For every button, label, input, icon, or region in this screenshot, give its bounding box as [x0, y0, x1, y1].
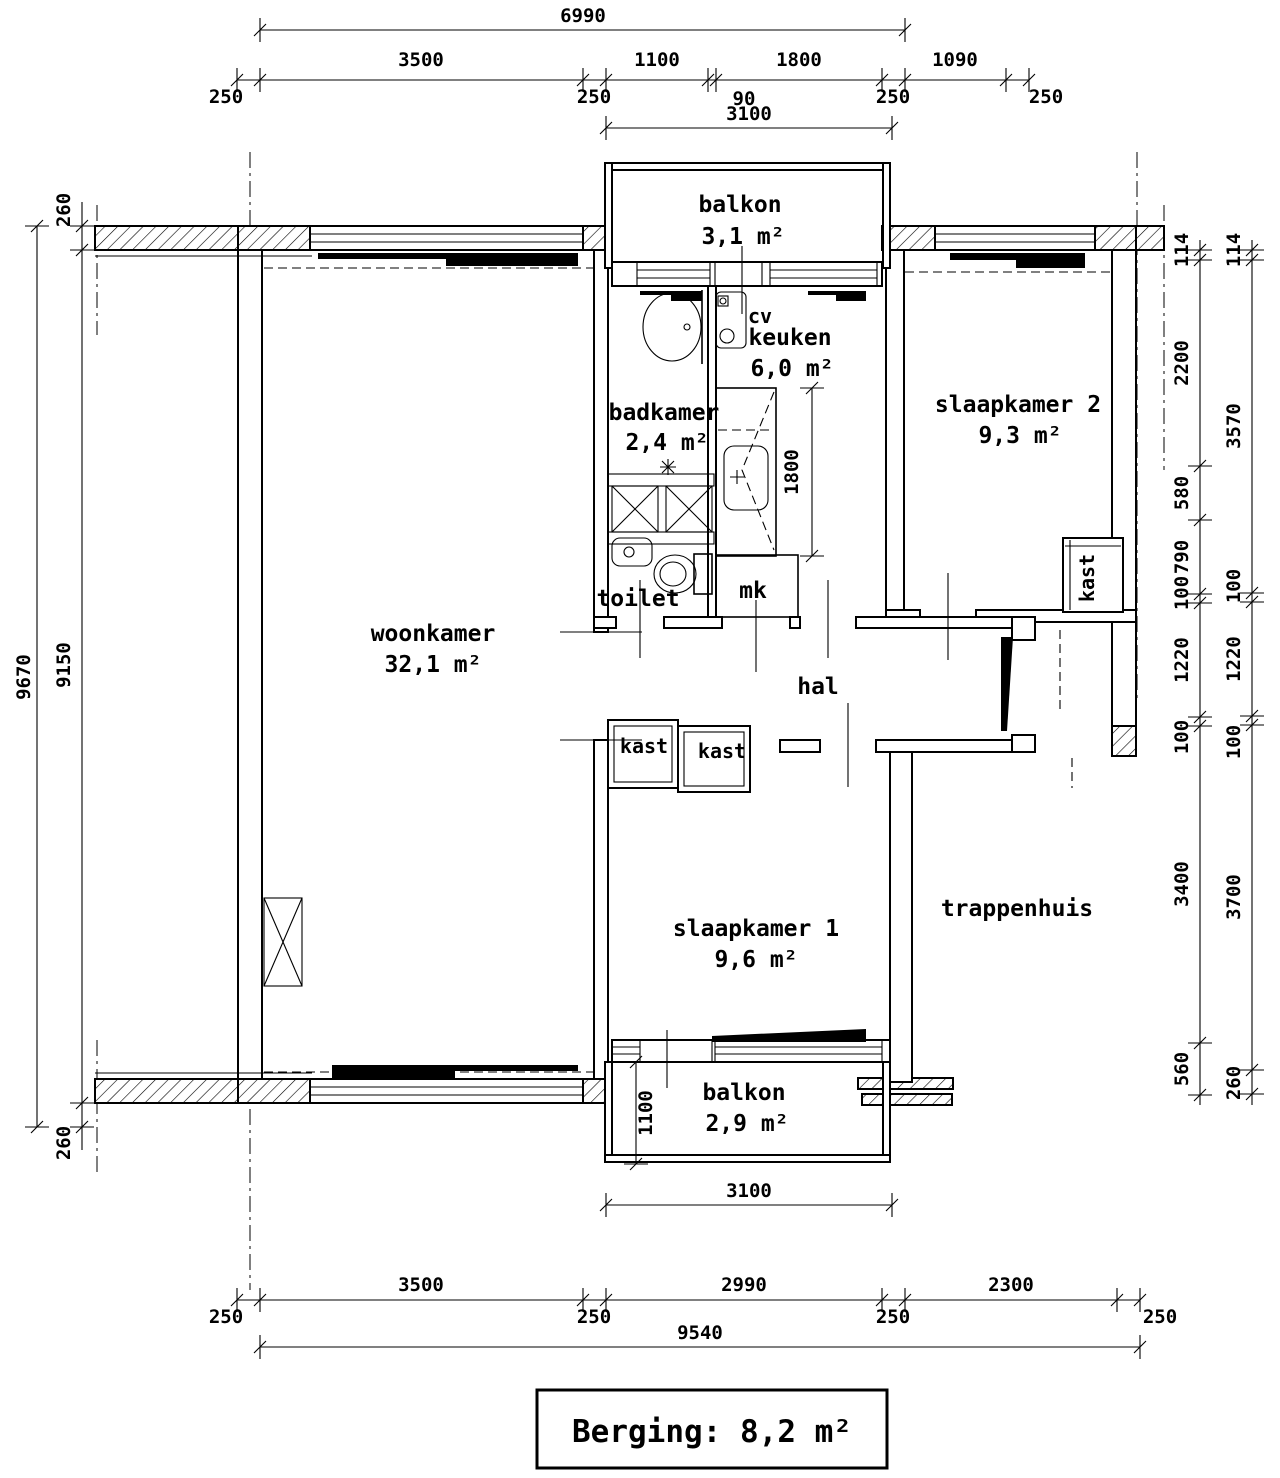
dim-ri-3400: 3400 [1171, 861, 1193, 907]
room-area-slaapkamer2: 9,3 m² [978, 423, 1061, 449]
room-label-balkon-zuid: balkon [702, 1080, 785, 1106]
dim-bot-balkon-3100: 3100 [726, 1180, 772, 1202]
dim-balkon-diepte-1100: 1100 [635, 1090, 657, 1136]
shower-drain-icon [660, 459, 676, 475]
room-label-trappenhuis: trappenhuis [941, 896, 1093, 922]
dim-bot-250d: 250 [1143, 1306, 1177, 1328]
berging-label: Berging: 8,2 m² [572, 1414, 852, 1450]
room-label-toilet: toilet [596, 586, 679, 612]
dim-top-250d: 250 [1029, 86, 1063, 108]
room-label-cv: cv [748, 304, 772, 328]
room-label-slaapkamer1: slaapkamer 1 [673, 916, 839, 942]
room-label-woonkamer: woonkamer [371, 621, 496, 647]
dim-top-250a: 250 [209, 86, 243, 108]
room-area-balkon-noord: 3,1 m² [701, 224, 784, 250]
room-area-keuken: 6,0 m² [750, 356, 833, 382]
dim-bot-250b: 250 [577, 1306, 611, 1328]
dim-bot-250c: 250 [876, 1306, 910, 1328]
room-label-kast-2: kast [698, 739, 746, 763]
dim-ro-3700: 3700 [1223, 874, 1245, 920]
dim-ri-100a: 100 [1171, 576, 1193, 610]
dim-ri-2200: 2200 [1171, 340, 1193, 386]
dim-top-3500: 3500 [398, 49, 444, 71]
dim-keuken-1800: 1800 [781, 449, 803, 495]
dim-ro-100a: 100 [1223, 569, 1245, 603]
room-labels: woonkamer 32,1 m² keuken 6,0 m² badkamer… [371, 192, 1101, 1137]
dim-ri-790: 790 [1171, 540, 1193, 574]
dim-bot-3500: 3500 [398, 1274, 444, 1296]
interior-walls [594, 250, 1136, 1082]
room-label-balkon-noord: balkon [698, 192, 781, 218]
shaft-box [264, 898, 302, 986]
floor-plan-page: 6990 3500 1100 1800 1090 250 250 90 250 … [0, 0, 1280, 1478]
dim-top-1090: 1090 [932, 49, 978, 71]
room-label-slaapkamer2: slaapkamer 2 [935, 392, 1101, 418]
room-area-badkamer: 2,4 m² [625, 430, 708, 456]
dim-left-overall-9670: 9670 [13, 654, 35, 700]
room-label-mk: mk [739, 578, 767, 604]
floor-plan-drawing: 6990 3500 1100 1800 1090 250 250 90 250 … [0, 0, 1280, 1478]
dim-bot-2300: 2300 [988, 1274, 1034, 1296]
dim-top-250b: 250 [577, 86, 611, 108]
washer-boxes [608, 474, 714, 544]
bathroom-sink [643, 290, 702, 364]
dim-ro-3570: 3570 [1223, 403, 1245, 449]
dim-ro-114: 114 [1223, 233, 1245, 267]
kitchen-counter [716, 388, 776, 556]
room-label-kast-slaapkamer2: kast [1075, 554, 1099, 602]
dim-ri-560: 560 [1171, 1052, 1193, 1086]
dim-bot-250a: 250 [209, 1306, 243, 1328]
dim-top-overall: 6990 [560, 5, 606, 27]
dim-left-260a: 260 [53, 193, 75, 227]
dim-ri-1220: 1220 [1171, 637, 1193, 683]
dim-ri-580: 580 [1171, 476, 1193, 510]
dim-top-250c: 250 [876, 86, 910, 108]
dim-bot-overall-9540: 9540 [677, 1322, 723, 1344]
dim-ro-260: 260 [1223, 1066, 1245, 1100]
front-door-leaf [1001, 637, 1013, 731]
berging-box: Berging: 8,2 m² [537, 1390, 887, 1468]
room-label-kast-1: kast [620, 734, 668, 758]
room-area-balkon-zuid: 2,9 m² [705, 1111, 788, 1137]
room-area-woonkamer: 32,1 m² [385, 652, 482, 678]
dim-ro-100b: 100 [1223, 725, 1245, 759]
dim-left-260b: 260 [53, 1126, 75, 1160]
room-label-hal: hal [797, 674, 839, 700]
dim-ri-114: 114 [1171, 233, 1193, 267]
dim-bot-2990: 2990 [721, 1274, 767, 1296]
room-label-badkamer: badkamer [609, 400, 720, 426]
dim-left-9150: 9150 [53, 642, 75, 688]
room-area-slaapkamer1: 9,6 m² [714, 947, 797, 973]
dim-ri-100b: 100 [1171, 720, 1193, 754]
room-label-keuken: keuken [748, 325, 831, 351]
dim-top-balkon-3100: 3100 [726, 103, 772, 125]
dim-top-1800: 1800 [776, 49, 822, 71]
dim-top-1100: 1100 [634, 49, 680, 71]
dim-ro-1220: 1220 [1223, 636, 1245, 682]
